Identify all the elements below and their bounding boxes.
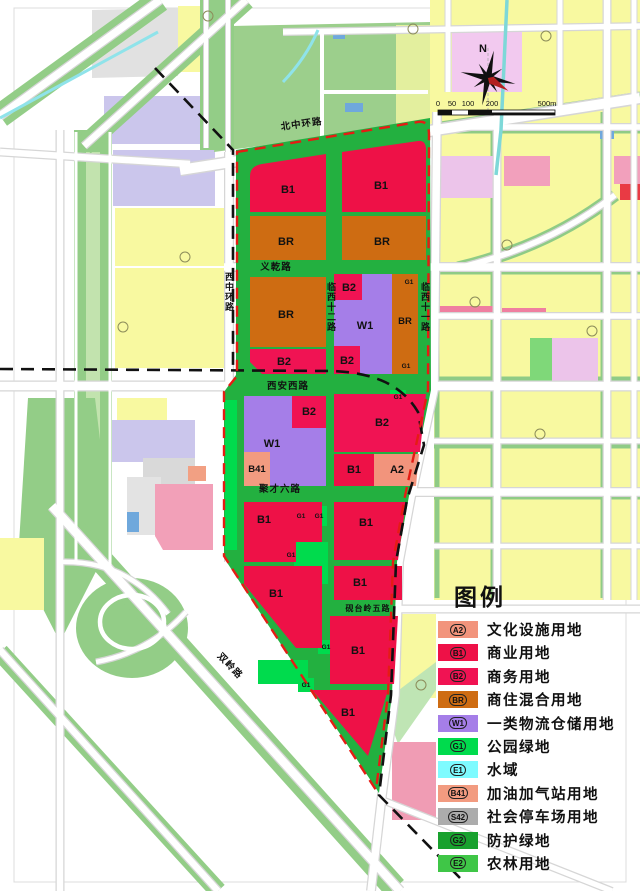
parcel-label-b2: B2: [302, 406, 316, 418]
parcel-label-g1: G1: [322, 644, 331, 651]
legend-swatch-g1: G1: [438, 738, 478, 755]
legend-label: 水域: [487, 759, 519, 780]
legend-label: 社会停车场用地: [487, 806, 599, 827]
parcel-label-w1: W1: [264, 438, 281, 450]
parcel-label-b1: B1: [374, 180, 388, 192]
parcel-yellow: [115, 268, 231, 368]
legend: 图例 A2 文化设施用地 B1 商业用地 B2 商务用地 BR 商住混合用地 W…: [438, 578, 638, 878]
legend-row: B2 商务用地: [438, 668, 638, 685]
legend-label: 文化设施用地: [487, 619, 583, 640]
parcel-label-b1: B1: [269, 588, 283, 600]
parcel-water-blue: [345, 103, 363, 112]
parcel-label-b1: B1: [353, 577, 367, 589]
road-label-linxi12: 临西十二路: [326, 281, 337, 332]
legend-title: 图例: [454, 578, 638, 612]
parcel-yellow: [115, 208, 227, 266]
legend-swatch-a2: A2: [438, 621, 478, 638]
legend-swatch-b1: B1: [438, 644, 478, 661]
parcel-label-b1: B1: [281, 184, 295, 196]
parcel-label-g1: G1: [302, 682, 311, 689]
legend-label: 商务用地: [487, 666, 551, 687]
legend-label: 商住混合用地: [487, 689, 583, 710]
scale-bar-segment: [468, 110, 492, 115]
road-label-jucai6: 聚才六路: [258, 483, 301, 495]
legend-swatch-e1: E1: [438, 761, 478, 778]
parcel-B1: [342, 141, 426, 212]
scale-bar-segment: [492, 113, 555, 116]
parcel-label-g1: G1: [402, 363, 411, 370]
legend-row: G2 防护绿地: [438, 832, 638, 849]
road-label-west-ring: 西中环路: [224, 272, 235, 312]
parcel-label-b2: B2: [277, 356, 291, 368]
legend-label: 农林用地: [487, 853, 551, 874]
parcel-label-g1: G1: [297, 513, 306, 520]
legend-row: BR 商住混合用地: [438, 691, 638, 708]
legend-swatch-b2: B2: [438, 668, 478, 685]
legend-row: W1 一类物流仓储用地: [438, 715, 638, 732]
parcel-label-g1: G1: [405, 279, 414, 286]
scale-tick: 100: [462, 99, 475, 108]
parcel-water-blue: [127, 512, 139, 532]
parcel-label-br: BR: [398, 316, 412, 327]
parcel-label-b1: B1: [351, 645, 365, 657]
parcel-label-w1: W1: [357, 320, 374, 332]
legend-row: E1 水域: [438, 761, 638, 778]
parcel-label-b1: B1: [359, 517, 373, 529]
parcel-yellow: [0, 538, 44, 610]
legend-swatch-w1: W1: [438, 715, 478, 732]
legend-swatch-g2: G2: [438, 832, 478, 849]
legend-code: B41: [448, 787, 469, 799]
legend-swatch-b41: B41: [438, 785, 478, 802]
legend-label: 一类物流仓储用地: [487, 713, 615, 734]
parcel-label-b2: B2: [375, 417, 389, 429]
parcel-violet: [434, 156, 494, 198]
scale-tick: 50: [448, 99, 456, 108]
parcel-label-b1: B1: [257, 514, 271, 526]
parcel-label-a2: A2: [390, 464, 404, 476]
legend-label: 商业用地: [487, 642, 551, 663]
scale-bar: 0 50 100 200 500m: [436, 99, 556, 115]
parcel-label-b2: B2: [342, 282, 356, 294]
parcel-label-br: BR: [278, 236, 294, 248]
road-label-yiqian: 义乾路: [259, 261, 292, 273]
legend-code: E2: [450, 857, 466, 869]
legend-code: B1: [450, 647, 466, 659]
legend-row: A2 文化设施用地: [438, 621, 638, 638]
legend-label: 防护绿地: [487, 830, 551, 851]
legend-row: B1 商业用地: [438, 644, 638, 661]
parcel-label-b41: B41: [248, 464, 266, 475]
parcel-pink: [504, 156, 550, 186]
legend-label: 加油加气站用地: [487, 783, 599, 804]
legend-code: G1: [450, 740, 467, 752]
legend-code: E1: [450, 764, 466, 776]
planning-map-page: B1 B1 BR BR BR BR B2 W1 B2 B2 B2 B2 W1 B…: [0, 0, 640, 891]
road-label-yantai5: 砚台岭五路: [346, 603, 391, 613]
parcel-label-g1: G1: [315, 513, 324, 520]
legend-code: S42: [448, 811, 468, 823]
parcel-green: [530, 338, 552, 386]
parcel-pink: [155, 484, 213, 550]
scale-bar-segment: [438, 110, 452, 115]
scale-tick: 0: [436, 99, 440, 108]
legend-row: S42 社会停车场用地: [438, 808, 638, 825]
legend-code: W1: [449, 717, 467, 729]
legend-row: B41 加油加气站用地: [438, 785, 638, 802]
legend-row: G1 公园绿地: [438, 738, 638, 755]
legend-code: G2: [450, 834, 467, 846]
parcel-label-g1: G1: [287, 552, 296, 559]
road-label-linxi11: 临西十一路: [420, 281, 431, 332]
parcel-salmon: [188, 466, 206, 481]
legend-swatch-br: BR: [438, 691, 478, 708]
parcel-label-br: BR: [374, 236, 390, 248]
scale-tick: 200: [486, 99, 499, 108]
legend-label: 公园绿地: [487, 736, 551, 757]
scale-tick: 500m: [538, 99, 557, 108]
legend-code: B2: [450, 670, 466, 682]
legend-swatch-s42: S42: [438, 808, 478, 825]
parcel-label-b2: B2: [340, 355, 354, 367]
parcel-B1: [334, 502, 406, 560]
parcel-label-g1: G1: [394, 394, 403, 401]
legend-row: E2 农林用地: [438, 855, 638, 872]
parcel-label-br: BR: [278, 309, 294, 321]
parcel-label-b1: B1: [347, 464, 361, 476]
legend-swatch-e2: E2: [438, 855, 478, 872]
parcel-label-b1: B1: [341, 707, 355, 719]
compass-north-label: N: [479, 43, 487, 55]
parcel-violet: [552, 338, 598, 386]
legend-code: BR: [449, 694, 467, 706]
road-label-xian-west: 西安西路: [267, 380, 309, 392]
parcel-yellowgreen: [396, 25, 430, 125]
legend-code: A2: [450, 624, 466, 636]
